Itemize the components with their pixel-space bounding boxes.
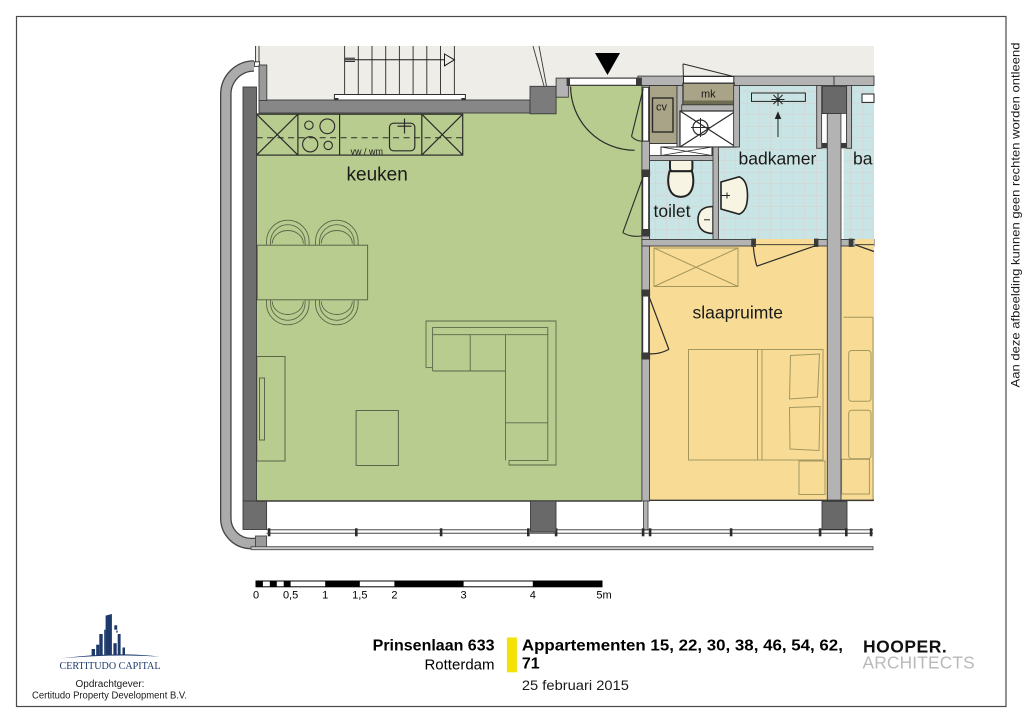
svg-text:0: 0 <box>253 590 259 602</box>
svg-text:cv: cv <box>656 102 668 114</box>
svg-text:1: 1 <box>322 590 328 602</box>
svg-text:1,5: 1,5 <box>352 590 367 602</box>
svg-text:ba: ba <box>853 149 873 169</box>
svg-text:4: 4 <box>530 590 536 602</box>
svg-text:keuken: keuken <box>347 165 408 186</box>
svg-text:Appartementen 15, 22, 30, 38,: Appartementen 15, 22, 30, 38, 46, 54, 62… <box>522 638 843 655</box>
svg-text:mk: mk <box>701 89 716 101</box>
svg-text:badkamer: badkamer <box>739 149 817 169</box>
svg-text:25 februari 2015: 25 februari 2015 <box>522 677 629 693</box>
svg-text:3: 3 <box>461 590 467 602</box>
svg-text:5m: 5m <box>596 590 611 602</box>
svg-text:71: 71 <box>522 656 540 673</box>
svg-text:CERTITUDO CAPITAL: CERTITUDO CAPITAL <box>60 661 161 672</box>
svg-text:2: 2 <box>391 590 397 602</box>
svg-text:slaapruimte: slaapruimte <box>693 303 783 323</box>
svg-text:Rotterdam: Rotterdam <box>424 657 494 674</box>
svg-text:Prinsenlaan 633: Prinsenlaan 633 <box>373 638 495 655</box>
svg-text:Certitudo Property Development: Certitudo Property Development B.V. <box>32 690 187 701</box>
svg-text:0,5: 0,5 <box>283 590 298 602</box>
svg-text:vw / wm: vw / wm <box>351 147 384 157</box>
svg-text:Opdrachtgever:: Opdrachtgever: <box>76 679 145 690</box>
svg-text:ARCHITECTS: ARCHITECTS <box>863 652 975 672</box>
svg-text:toilet: toilet <box>654 201 691 221</box>
svg-text:Aan deze afbeelding kunnen gee: Aan deze afbeelding kunnen geen rechten … <box>1010 43 1023 388</box>
